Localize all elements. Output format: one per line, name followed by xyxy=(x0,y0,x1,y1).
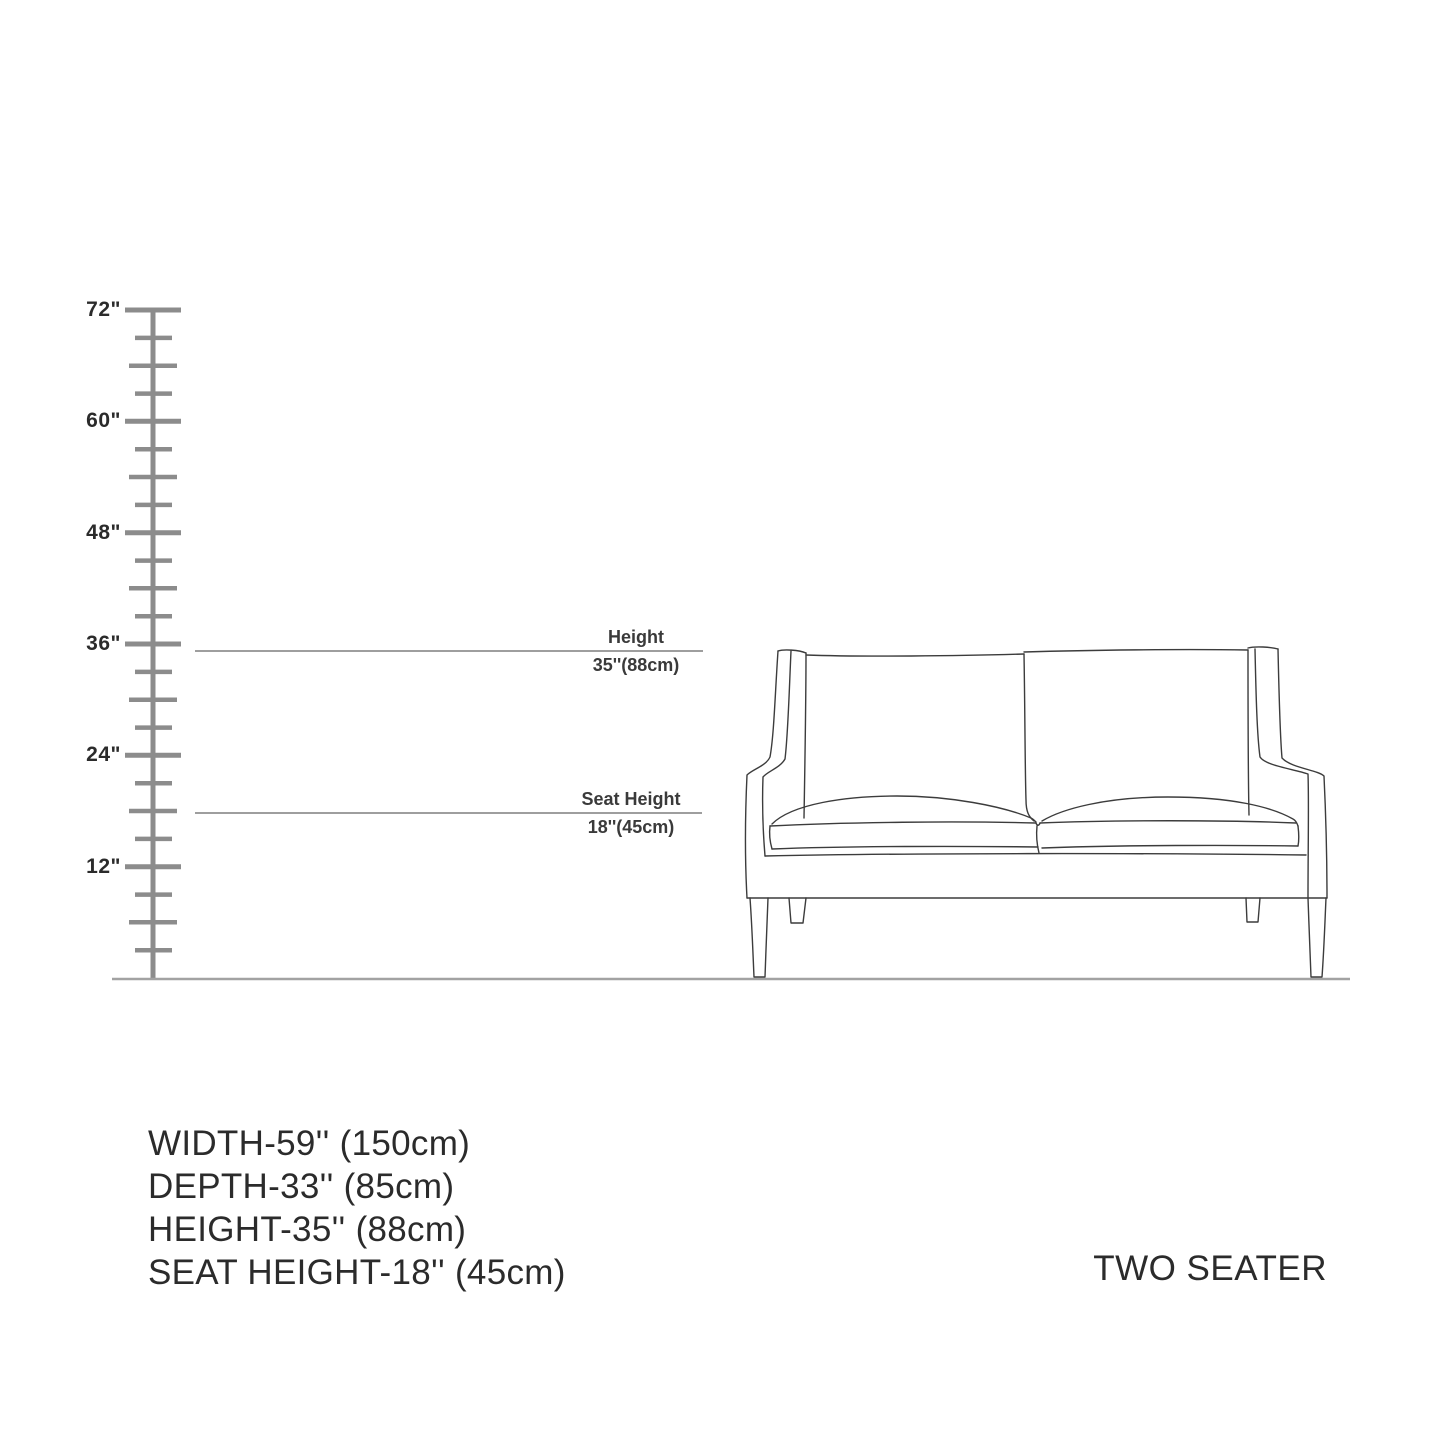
sofa-right-cushion-end xyxy=(1298,826,1299,846)
sofa-rear-right-leg xyxy=(1246,898,1260,922)
height-ruler xyxy=(125,308,181,978)
sofa-frame-bottom xyxy=(747,897,1327,898)
sofa-back-top-right xyxy=(1024,650,1248,652)
sofa-left-arm-outline xyxy=(746,651,779,898)
spec-depth: DEPTH-33'' (85cm) xyxy=(148,1165,566,1208)
ruler-label-24: 24" xyxy=(51,741,121,769)
sofa-left-cushion-bottom xyxy=(772,846,1038,849)
ruler-label-72: 72" xyxy=(51,296,121,324)
sofa-back-center-seam xyxy=(1024,654,1034,821)
sofa-left-cushion-end xyxy=(770,826,772,849)
sofa-left-wing-cap xyxy=(778,650,806,653)
height-annotation-label: Height xyxy=(516,626,756,648)
seat-height-annotation-label: Seat Height xyxy=(511,788,751,810)
sofa-illustration xyxy=(746,647,1328,977)
spec-list: WIDTH-59'' (150cm) DEPTH-33'' (85cm) HEI… xyxy=(148,1122,566,1294)
product-type-label: TWO SEATER xyxy=(997,1249,1327,1289)
seat-height-annotation-value: 18''(45cm) xyxy=(511,816,751,838)
spec-height: HEIGHT-35'' (88cm) xyxy=(148,1208,566,1251)
sofa-right-wing-cap xyxy=(1248,647,1278,649)
dimension-diagram: 72" 60" 48" 36" 24" 12" Height 35''(88cm… xyxy=(0,0,1445,1445)
ruler-label-12: 12" xyxy=(51,853,121,881)
sofa-back-top-left xyxy=(806,654,1024,656)
sofa-right-cushion-bottom xyxy=(1042,845,1298,848)
sofa-cushion-gap xyxy=(1036,823,1040,853)
spec-seat-height: SEAT HEIGHT-18'' (45cm) xyxy=(148,1251,566,1294)
sofa-apron-top xyxy=(765,854,1306,856)
sofa-right-wing-seam xyxy=(1255,649,1308,898)
sofa-right-cushion-welt xyxy=(1040,821,1296,823)
sofa-rear-left-leg xyxy=(789,898,806,923)
sofa-left-wing-inner-edge xyxy=(804,653,806,818)
sofa-right-arm-outline xyxy=(1278,649,1327,898)
ruler-label-60: 60" xyxy=(51,407,121,435)
ruler-label-48: 48" xyxy=(51,519,121,547)
height-annotation-value: 35''(88cm) xyxy=(516,654,756,676)
sofa-left-cushion-welt xyxy=(770,822,1036,826)
ruler-label-36: 36" xyxy=(51,630,121,658)
sofa-right-back-edge xyxy=(1248,650,1249,815)
sofa-left-cushion-top xyxy=(772,796,1036,824)
sofa-front-right-leg xyxy=(1308,898,1326,977)
spec-width: WIDTH-59'' (150cm) xyxy=(148,1122,566,1165)
sofa-front-left-leg xyxy=(750,898,768,977)
